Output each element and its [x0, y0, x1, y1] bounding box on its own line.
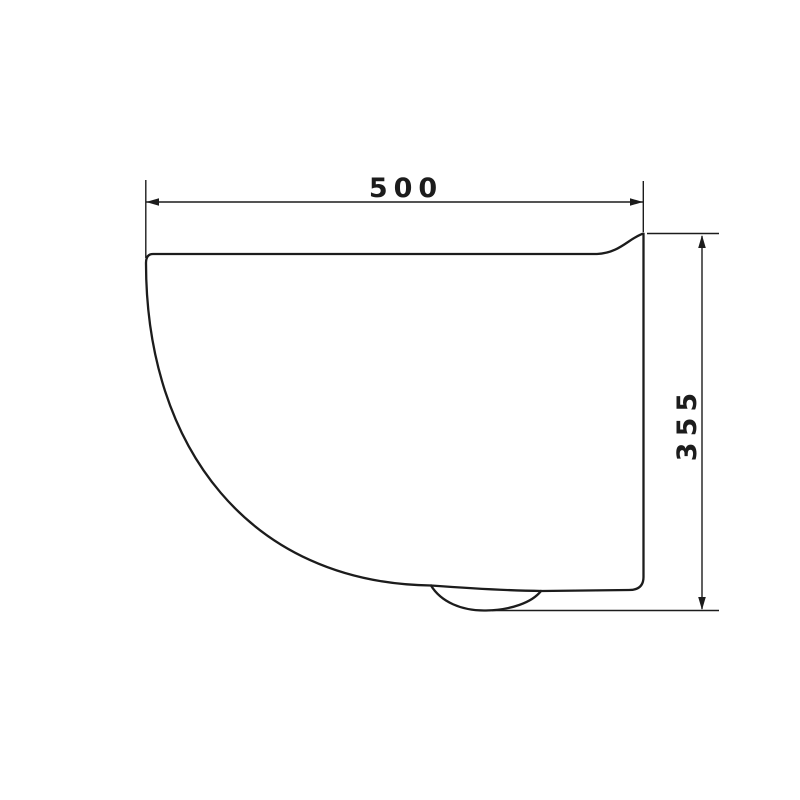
width-arrow-left — [146, 198, 159, 206]
toilet-profile-outline — [146, 234, 644, 592]
height-arrow-up — [698, 235, 706, 248]
toilet-side-profile-drawing: 500 355 — [0, 0, 800, 800]
height-arrow-down — [698, 597, 706, 610]
technical-drawing-canvas: 500 355 — [0, 0, 800, 800]
width-dimension-label: 500 — [369, 173, 443, 204]
height-dimension-label: 355 — [672, 387, 703, 461]
width-arrow-right — [630, 198, 643, 206]
